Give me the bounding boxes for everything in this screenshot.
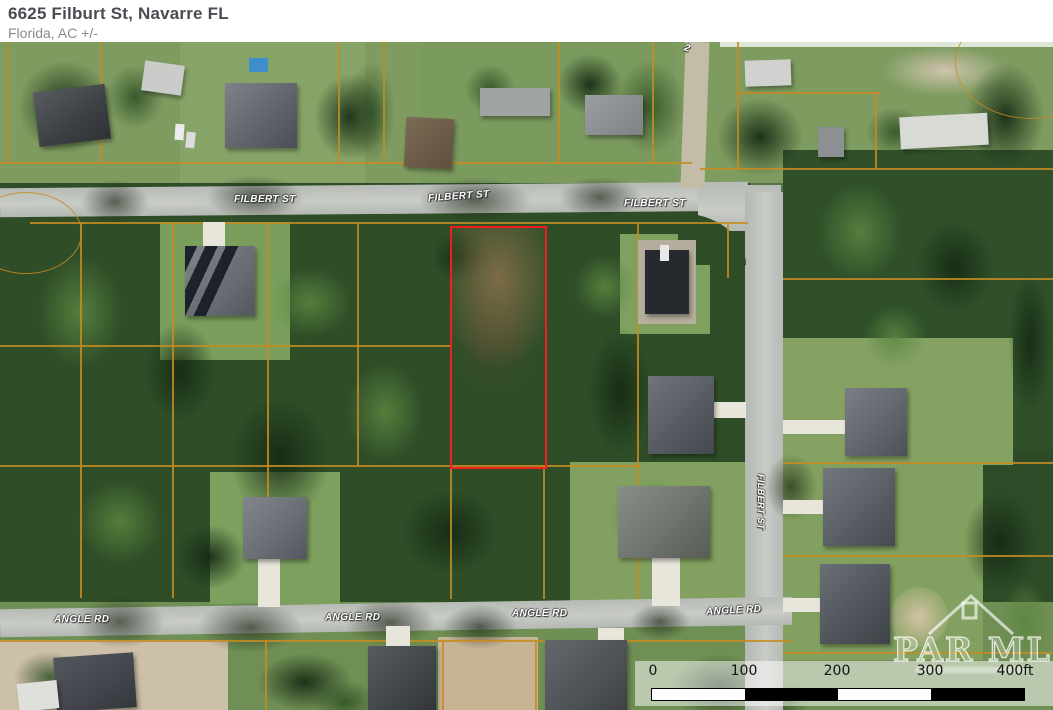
driveway	[203, 222, 225, 248]
parcel-line	[727, 222, 729, 278]
page-title: 6625 Filburt St, Navarre FL	[8, 4, 229, 24]
house-roof	[585, 95, 643, 135]
parcel-line	[383, 42, 385, 163]
parcel-line	[783, 462, 1053, 464]
parcel-line	[80, 222, 82, 598]
parcel-line	[7, 42, 9, 162]
scale-segment	[745, 689, 838, 700]
house-roof	[545, 640, 627, 710]
mobile-home	[480, 88, 550, 116]
parcel-line	[737, 92, 880, 94]
parcel-line	[700, 168, 1053, 170]
parcel-line	[783, 278, 1053, 280]
shed-roof	[818, 127, 844, 157]
parcel-line	[442, 640, 444, 710]
scale-bar	[651, 688, 1025, 701]
driveway	[652, 558, 680, 606]
street-label-filbert-3: FILBERT ST	[624, 198, 686, 209]
parcel-line	[357, 222, 359, 466]
scale-tick-400ft: 400ft	[997, 663, 1034, 679]
dirt-lot	[438, 637, 538, 710]
listing-map-screenshot: 6625 Filburt St, Navarre FL Florida, AC …	[0, 0, 1053, 710]
parcel-line	[783, 555, 1053, 557]
house-roof	[618, 486, 710, 558]
parcel-line	[875, 92, 877, 168]
house-roof	[243, 497, 307, 559]
street-label-angle-1: ANGLE RD	[54, 614, 109, 625]
mobile-home	[899, 113, 989, 150]
scale-tick-0: 0	[649, 663, 658, 679]
house-roof	[845, 388, 907, 456]
swimming-pool	[249, 58, 268, 72]
mobile-home	[141, 60, 185, 95]
parcel-line	[172, 222, 174, 598]
scale-tick-300: 300	[917, 663, 944, 679]
scale-tick-100: 100	[731, 663, 758, 679]
street-label-angle-3: ANGLE RD	[512, 608, 567, 619]
parcel-line	[30, 222, 748, 224]
parcel-line	[0, 345, 452, 347]
driveway	[783, 420, 845, 434]
car	[660, 245, 669, 261]
page-subtitle: Florida, AC +/-	[8, 25, 98, 41]
road-dirt-top	[680, 42, 709, 188]
aerial-map: FILBERT ST FILBERT ST FILBERT ST FILBERT…	[0, 42, 1053, 710]
driveway	[783, 500, 823, 514]
house-roof	[17, 680, 60, 710]
parcel-line	[450, 466, 452, 599]
street-label-filbert-1: FILBERT ST	[234, 194, 296, 205]
house-roof-solar	[185, 246, 255, 316]
street-label-filbert-vertical: FILBERT ST	[756, 474, 766, 530]
parcel-line	[737, 42, 739, 168]
house-roof	[648, 376, 714, 454]
parcel-line	[535, 640, 537, 710]
scale-segment	[838, 689, 931, 700]
house-roof	[33, 84, 111, 147]
parcel-line	[543, 466, 545, 599]
driveway	[386, 626, 410, 646]
house-roof	[823, 468, 895, 546]
parcel-line	[265, 640, 267, 710]
road-filbert-st-vertical	[745, 192, 783, 710]
mobile-home	[745, 59, 792, 87]
car	[174, 124, 184, 141]
scale-segment	[652, 689, 745, 700]
parcel-line	[0, 162, 692, 164]
parcel-line	[652, 42, 654, 163]
house-roof	[225, 83, 297, 148]
property-outline	[450, 226, 547, 469]
driveway	[258, 559, 280, 607]
house-roof	[53, 652, 137, 710]
scale-segment	[931, 689, 1024, 700]
parcel-line	[558, 42, 560, 163]
house-roof	[368, 646, 436, 710]
house-roof	[820, 564, 890, 644]
driveway	[783, 598, 820, 612]
street-label-angle-2: ANGLE RD	[325, 612, 380, 623]
parcel-line	[338, 42, 340, 162]
scale-tick-200: 200	[824, 663, 851, 679]
driveway	[714, 402, 746, 418]
car	[185, 132, 196, 149]
house-roof	[404, 117, 455, 169]
